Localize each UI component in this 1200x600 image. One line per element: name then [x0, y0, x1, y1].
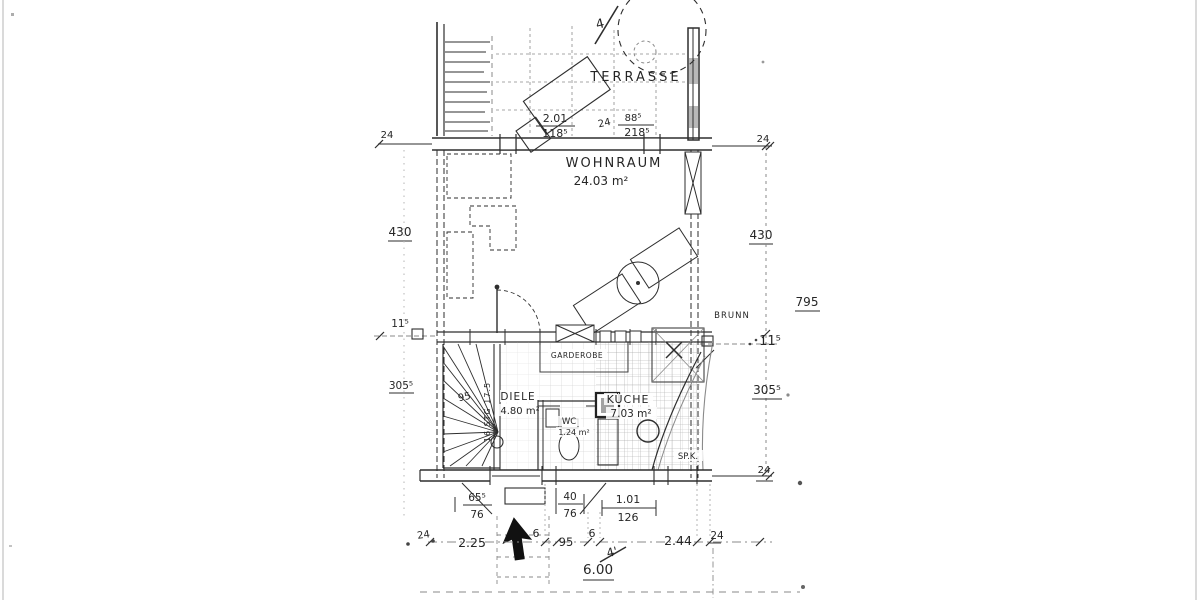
dim-sill-left: 11⁵ [391, 318, 409, 330]
room-label-garderobe: GARDEROBE [551, 351, 603, 360]
dim-chain-c4: 95 [559, 535, 574, 549]
living-room-builtins [447, 154, 516, 298]
room-label-wohnraum: WOHNRAUM [566, 156, 663, 171]
dim-entry-d1-top: 65⁵ [468, 492, 486, 504]
scanned-floor-plan-sheet: 4 [0, 0, 1200, 600]
terrace-dimensions: 2.01 118⁵ 24 88⁵ 218⁵ [536, 112, 654, 140]
dim-terrace-right-top: 88⁵ [625, 113, 642, 124]
room-label-kueche: KÜCHE [607, 393, 650, 406]
tree-inner-scribble [634, 41, 656, 63]
room-label-wc: WC [562, 417, 576, 427]
entrance-arrow [499, 515, 535, 562]
stair-width-label: 95 [457, 391, 472, 404]
room-area-wc: 1.24 m² [558, 428, 589, 437]
label-brunn: BRUNN [714, 311, 750, 321]
room-label-diele: DIELE [500, 391, 535, 403]
dim-entry-d3-top: 1.01 [616, 493, 641, 506]
dim-terrace-right-bottom: 218⁵ [624, 126, 649, 139]
dim-front-wall-right: 24 [757, 134, 770, 145]
dim-chain-c2: 2.25 [458, 535, 486, 550]
room-area-kueche: 7.03 m² [610, 408, 651, 420]
window-bumpout [556, 325, 641, 342]
living-room-furniture [573, 228, 697, 334]
dim-chain-c1: 24 [417, 529, 431, 542]
room-label-spk: SP.K. [678, 452, 698, 462]
room-area-diele: 4.80 m² [500, 406, 539, 417]
dim-lower-left: 305⁵ [389, 380, 413, 392]
section-marker-top-label: 4 [594, 16, 606, 33]
dim-chain-c6: 2.44 [664, 533, 692, 548]
dim-left-430: 430 [389, 225, 412, 239]
terrace-right-wall [688, 28, 699, 140]
right-wall-window [685, 152, 701, 214]
dim-sill-right: 11⁵ [759, 334, 781, 349]
dim-entry-d2-bottom: 76 [563, 508, 577, 520]
section-marker-top: 4 [594, 6, 618, 44]
section-marker-bottom-label: 4' [605, 544, 619, 560]
room-label-terrasse: TERRASSE [589, 70, 681, 85]
floor-plan-drawing: 4 [0, 0, 1200, 600]
dim-lower-right: 305⁵ [753, 383, 781, 397]
terrace: TERRASSE 2.01 118⁵ 24 88⁵ 218⁵ [437, 0, 706, 152]
scan-edge-artifacts [3, 0, 1196, 600]
dim-entry-d3-bottom: 126 [618, 511, 639, 524]
dim-total-width: 6.00 [583, 562, 613, 578]
entry-dimensions: 65⁵ 76 40 76 1.01 126 [455, 488, 656, 524]
dim-chain-c3: 6 [533, 527, 540, 540]
dim-chain-c7: 24 [710, 530, 724, 542]
dim-chain-c5: 6 [589, 527, 596, 540]
dim-right-430: 430 [750, 228, 773, 242]
trellis-rungs [445, 42, 490, 131]
dim-bottom-wall-right: 24 [758, 465, 771, 476]
dim-terrace-gap: 24 [597, 117, 612, 130]
bottom-totals: 4' 6.00 [420, 544, 800, 598]
dim-entry-d2-top: 40 [563, 491, 576, 503]
dim-right-total-795: 795 [796, 295, 819, 309]
living-room-door-swing [495, 285, 540, 333]
dim-terrace-left-top: 2.01 [543, 112, 568, 125]
stair-annotation: 16 STG 17.5 [483, 382, 492, 442]
entry-step-hatched [505, 488, 545, 504]
bottom-dimension-chain: 24 2.25 6 95 6 2.44 24 [406, 484, 772, 550]
room-area-wohnraum: 24.03 m² [574, 174, 629, 188]
front-wall: 24 24 [375, 130, 774, 154]
dim-entry-d1-bottom: 76 [470, 509, 484, 521]
winder-stair: 95 16 STG 17.5 [443, 344, 503, 470]
dim-front-wall-left: 24 [381, 130, 394, 141]
